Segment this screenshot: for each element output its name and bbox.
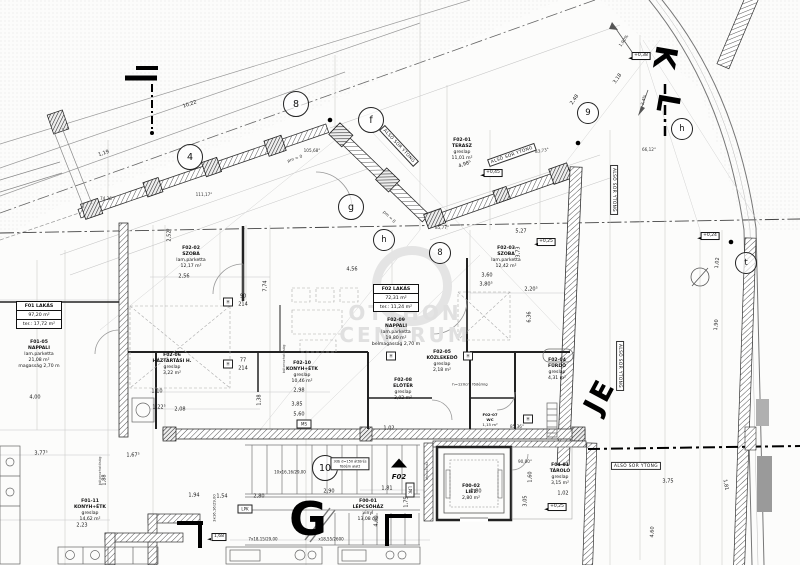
level-marker-5: +0,25 (548, 503, 567, 511)
dim-label: 5,27 (515, 230, 526, 235)
axis-marker-g: g (338, 194, 364, 220)
apartment-f01-terrace: ter.: 17,72 m² (17, 320, 61, 328)
dim-label: 1,02 (383, 427, 394, 432)
boundary-letter-g: G (289, 496, 327, 542)
dim-label: 3,77⁵ (34, 452, 47, 457)
dim-label: 6,36 (528, 311, 533, 322)
dim-label: 2,52⁵ (168, 228, 173, 241)
room-label-f02-01: F02-01 TERASZ greslap 11,01 m² (452, 138, 473, 162)
dim-label: 3,85 (291, 403, 302, 408)
room-label-f02-09: F02-09 NAPPALI lam.parketta 19,80 m² bel… (372, 318, 420, 348)
dim-label: 1,88 (103, 474, 108, 485)
dim-label: 90 (240, 295, 246, 300)
axis-marker-t: t (735, 252, 757, 274)
angle-label-8: 90,00° (518, 460, 532, 464)
dim-label: 1,02 (557, 492, 568, 497)
dim-label: 5,60 (293, 413, 304, 418)
apartment-label-f01: F01 LAKÁS 97,20 m² ter.: 17,72 m² (16, 301, 62, 329)
dim-label: 3,80⁵ (479, 283, 492, 288)
room-label-f01-05: F01-05 NAPPALI lam.parketta 21,08 m² mag… (18, 340, 59, 370)
lpk-marker-2: LPK (406, 483, 415, 498)
axis-marker-h2: h (671, 118, 693, 140)
axis-marker-8a: 8 (283, 91, 309, 117)
level-flag-icon-3: ◄ (628, 57, 632, 62)
vertical-text-stairwell: lépcsőház (425, 462, 429, 480)
piercing-note-box: 3db d=150 áttörés födém alatt (330, 457, 369, 470)
dim-label: 7,74 (264, 280, 269, 291)
floor-plan-canvas: OTTHON CENTRUM F01 LAKÁS 97,20 m² ter.: … (0, 0, 800, 565)
room-label-f02-08: F02-08 ELŐTÉR greslap 3,02 m² (393, 378, 413, 402)
street-label-3: ALSÓ SOR YTONG (610, 165, 618, 215)
dim-label: 214 (238, 367, 248, 372)
h-marker-3: H (386, 352, 396, 361)
apartment-label-f02: F02 LAKÁS 72,31 m² ter.: 11,24 m² (373, 284, 419, 312)
entrance-label: F02 (392, 473, 407, 481)
room-label-f02-04: F02-04 FÜRDŐ greslap 4,31 m² (548, 358, 566, 382)
dim-label: 3,75 (662, 480, 673, 485)
room-label-f02-07: F02-07 WC 1,15 m² (482, 412, 497, 427)
dim-label: 1,94 (188, 494, 199, 499)
lpk-marker-1: LPK (238, 505, 253, 514)
h-marker-5: H (523, 415, 533, 424)
axis-marker-4: 4 (177, 144, 203, 170)
dim-label: 3,60 (481, 274, 492, 279)
dim-label: 1,60 (529, 471, 534, 482)
apartment-f01-title: F01 LAKÁS (17, 302, 61, 311)
dim-label: 2,20⁵ (524, 288, 537, 293)
room-label-f02-02: F02-02 SZOBA lam.parketta 12,17 m² (176, 246, 205, 270)
dim-label: 2,98 (293, 389, 304, 394)
dim-label: 1,10 (151, 390, 162, 395)
angle-label-1: 111,17° (196, 193, 213, 197)
level-flag-icon-4: ◄ (697, 237, 701, 242)
apartment-f02-title: F02 LAKÁS (374, 285, 418, 294)
axis-marker-8b: 8 (429, 242, 451, 264)
boundary-letter-k: K (647, 43, 681, 71)
apartment-f02-area: 72,31 m² (374, 294, 418, 303)
level-flag-icon-2: ◄ (534, 243, 538, 248)
dim-label: 1,75 (405, 496, 410, 507)
lintel-note: h=120cm födémig (452, 383, 487, 388)
lift-clear-note: 1,68 (211, 533, 226, 541)
dim-label: 1,67⁵ (126, 454, 139, 459)
level-marker-1: +0,45 (484, 169, 503, 177)
dim-label: 4,60 (650, 526, 656, 537)
door-arcs (95, 172, 528, 470)
angle-label-3: 105,68° (304, 149, 321, 153)
h-marker-2: H (223, 360, 233, 369)
room-label-f01-11: F01-11 KONYH+ÉTK greslap 14,62 m² (74, 499, 106, 523)
vertical-text-furnishability-2: bútorozhatóság (282, 345, 286, 374)
angle-label-2: 74,26° (100, 197, 114, 201)
dim-label: 4,56 (346, 268, 357, 273)
dim-label: 1,81 (722, 479, 729, 491)
level-marker-2: +0,25 (537, 238, 556, 246)
h-marker-1: H (223, 298, 233, 307)
room-label-f04-01: F04-01 TÁROLÓ greslap 3,15 m² (550, 463, 570, 487)
h-marker-4: H (463, 352, 473, 361)
dim-label: 1,90 (714, 319, 720, 331)
level-marker-4: +0,24 (701, 232, 720, 240)
dim-label: 3,05 (524, 495, 529, 506)
axis-marker-h1: h (373, 229, 395, 251)
dim-label: 214 (238, 303, 248, 308)
dim-label: 77 (240, 359, 246, 364)
dim-label: 1,54 (216, 495, 227, 500)
dim-label: 2,56 (178, 275, 189, 280)
apartment-f01-area: 97,20 m² (17, 311, 61, 320)
dim-label: 4,60 (375, 515, 380, 526)
dim-label: 1,81 (381, 487, 392, 492)
level-flag-icon-5: ◄ (544, 508, 548, 513)
dim-label: 1,38 (258, 394, 263, 405)
ms-marker: MS (297, 420, 312, 429)
level-flag-icon-1: ◄ (480, 174, 484, 179)
dim-label: 2,08 (174, 408, 185, 413)
dim-label: 4,00 (29, 396, 40, 401)
stair-note-top: 10x16,16/29,00 (274, 471, 306, 476)
stair-note-bottom: 7x18,15/29,00 (248, 538, 277, 543)
dim-label: 2,23 (76, 524, 87, 529)
angle-label-6: 85,77° (435, 226, 449, 230)
dim-label: 3,73 (517, 246, 522, 257)
room-label-f02-10: F02-10 KONYH+ÉTK greslap 10,46 m² (286, 361, 318, 385)
level-flag-icon-6: ◄ (207, 538, 211, 543)
dim-label: 1,80 (470, 490, 481, 495)
room-label-f02-06: F02-06 HÁZTARTÁSI H. greslap 3,22 m² (153, 353, 192, 377)
angle-label-4: 66,12° (642, 148, 656, 152)
room-label-f02-05: F02-05 KÖZLEKEDŐ greslap 2,18 m² (426, 350, 457, 374)
angle-label-7: 85,36° (510, 425, 524, 429)
axis-marker-9: 9 (577, 102, 599, 124)
street-label-4: ALSÓ SOR YTONG (611, 462, 661, 470)
entrance-arrow-icon (391, 459, 407, 468)
apartment-f02-terrace: ter.: 11,24 m² (374, 303, 418, 311)
dim-label: 2,80 (253, 495, 264, 500)
dim-label: 1,22⁵ (152, 406, 165, 411)
dim-label: 1,02 (715, 257, 721, 269)
